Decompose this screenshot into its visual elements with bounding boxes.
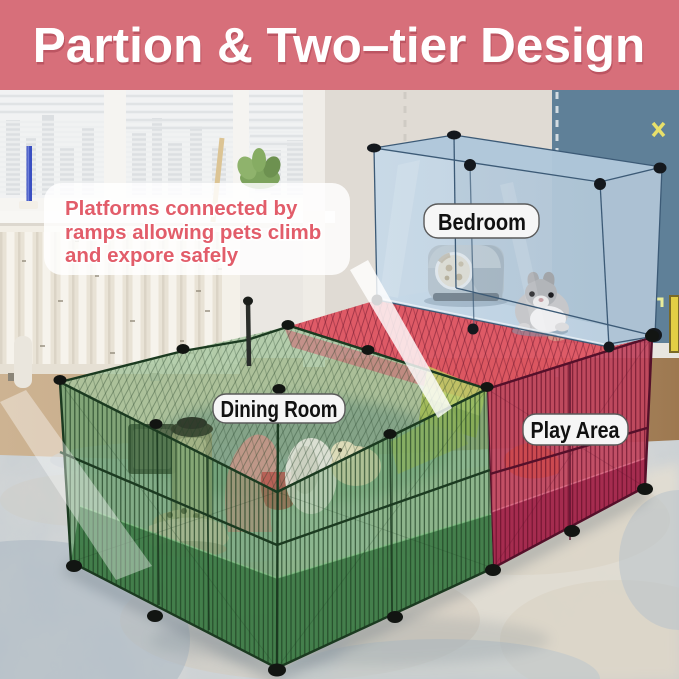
svg-text:Partion & Two–tier Design: Partion & Two–tier Design — [33, 18, 645, 73]
svg-text:Play Area: Play Area — [531, 417, 620, 443]
svg-text:Bedroom: Bedroom — [438, 209, 526, 235]
svg-text:Platforms connected by: Platforms connected by — [65, 197, 298, 220]
svg-text:and expore safely: and expore safely — [65, 244, 239, 267]
svg-text:Dining Room: Dining Room — [221, 396, 338, 422]
svg-text:ramps allowing pets climb: ramps allowing pets climb — [65, 221, 321, 244]
